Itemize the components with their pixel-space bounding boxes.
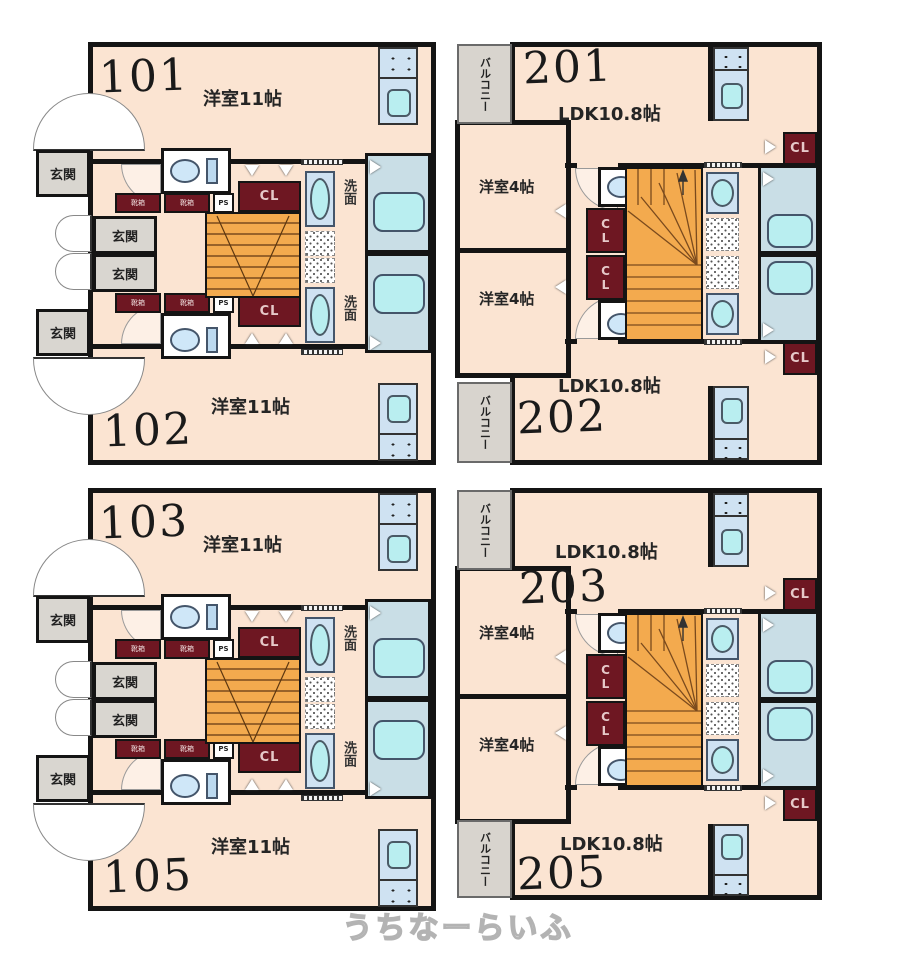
sink-icon bbox=[721, 834, 743, 860]
ldk-label-201: LDK10.8帖 bbox=[558, 100, 661, 126]
door-marker bbox=[555, 650, 566, 664]
plan-block-103-105: 玄関 玄関 103 洋室11帖 靴箱 靴箱 PS 靴箱 靴箱 PS 玄関 玄関 … bbox=[88, 488, 436, 911]
sliding-door bbox=[704, 608, 742, 614]
wall bbox=[565, 339, 577, 344]
stairs bbox=[625, 613, 703, 787]
kitchen-105 bbox=[378, 829, 418, 907]
washer-space-105 bbox=[305, 704, 335, 729]
entrance-label: 玄関 bbox=[50, 610, 76, 629]
door-marker bbox=[763, 172, 774, 186]
bathroom-101 bbox=[365, 153, 431, 253]
stairs bbox=[205, 658, 301, 744]
washer-space-203 bbox=[706, 664, 739, 697]
bathroom-205 bbox=[758, 700, 819, 789]
entry-door-arc bbox=[55, 215, 92, 252]
door-marker bbox=[370, 336, 381, 350]
stairs bbox=[625, 167, 703, 341]
closet-mid-205: CL bbox=[586, 701, 625, 746]
door-marker bbox=[765, 140, 776, 154]
closet-mid-201: CL bbox=[586, 208, 625, 253]
stove-icon bbox=[380, 433, 416, 463]
entrance-hall-105: 玄関 bbox=[93, 700, 157, 738]
door-marker bbox=[765, 350, 776, 364]
entrance-hall-103: 玄関 bbox=[93, 662, 157, 700]
unit-number-105: 105 bbox=[102, 853, 193, 900]
balcony-205: バルコニー bbox=[457, 820, 512, 898]
sliding-door bbox=[301, 349, 343, 355]
bathtub-icon bbox=[767, 707, 813, 741]
sink-icon bbox=[387, 89, 411, 117]
sink-icon bbox=[721, 529, 743, 555]
kitchen-205 bbox=[713, 824, 749, 896]
closet-mid-203: CL bbox=[586, 654, 625, 699]
toilet-room-105 bbox=[161, 759, 231, 805]
washbasin-203 bbox=[706, 618, 739, 660]
entrance-label: 玄関 bbox=[112, 264, 138, 283]
room-label-11jo-105: 洋室11帖 bbox=[211, 833, 290, 859]
shoe-box: 靴箱 bbox=[164, 739, 210, 759]
plan-block-201-202: バルコニー バルコニー 201 LDK10.8帖 CL 洋室4帖 洋室4帖 CL bbox=[455, 42, 825, 465]
closet-202: CL bbox=[783, 342, 817, 375]
door-marker bbox=[763, 618, 774, 632]
room-label-11jo-103: 洋室11帖 bbox=[203, 531, 282, 557]
kitchen-202 bbox=[713, 386, 749, 460]
site-watermark: うちなーらいふ bbox=[343, 903, 574, 947]
door-marker bbox=[555, 204, 566, 218]
stove-icon bbox=[380, 49, 416, 79]
wall bbox=[455, 694, 571, 699]
door-marker bbox=[245, 779, 259, 790]
washer-space-101 bbox=[305, 231, 335, 256]
shoe-box: 靴箱 bbox=[164, 293, 210, 313]
unit-number-201: 201 bbox=[522, 44, 613, 91]
toilet-icon bbox=[170, 159, 200, 183]
washroom-label-101: 洗面 bbox=[339, 179, 358, 205]
kitchen-101 bbox=[378, 47, 418, 125]
toilet-room-101 bbox=[161, 148, 231, 194]
door-marker bbox=[279, 165, 293, 176]
stove-icon bbox=[715, 49, 747, 71]
unit-number-103: 103 bbox=[98, 499, 189, 546]
balcony-201: バルコニー bbox=[457, 44, 512, 124]
door-marker bbox=[765, 796, 776, 810]
room-label-4jo-205: 洋室4帖 bbox=[479, 734, 534, 755]
door-marker bbox=[555, 726, 566, 740]
sink-icon bbox=[721, 83, 743, 109]
shoe-box: 靴箱 bbox=[115, 739, 161, 759]
closet-205: CL bbox=[783, 788, 817, 821]
stove-icon bbox=[380, 495, 416, 525]
door-marker bbox=[763, 769, 774, 783]
wall bbox=[565, 785, 577, 790]
bathroom-102 bbox=[365, 253, 431, 353]
washer-space-103 bbox=[305, 677, 335, 702]
plan-block-203-205: バルコニー バルコニー LDK10.8帖 203 CL 洋室4帖 洋室4帖 CL bbox=[455, 488, 825, 911]
sliding-door bbox=[301, 605, 343, 611]
kitchen-102 bbox=[378, 383, 418, 461]
closet-203: CL bbox=[783, 578, 817, 611]
door-marker bbox=[370, 782, 381, 796]
bathtub-icon bbox=[767, 261, 813, 295]
balcony-label: バルコニー bbox=[477, 57, 493, 112]
toilet-icon bbox=[170, 328, 200, 352]
toilet-icon bbox=[170, 774, 200, 798]
unit-number-205: 205 bbox=[516, 850, 607, 897]
balcony-label: バルコニー bbox=[477, 503, 493, 558]
sink-icon bbox=[721, 398, 743, 424]
door-marker bbox=[763, 323, 774, 337]
room-label-4jo-201: 洋室4帖 bbox=[479, 176, 534, 197]
closet-201: CL bbox=[783, 132, 817, 165]
entrance-hall-101: 玄関 bbox=[93, 216, 157, 254]
door-marker bbox=[370, 160, 381, 174]
toilet-room-102 bbox=[161, 313, 231, 359]
pipe-space: PS bbox=[213, 639, 234, 659]
shoe-box: 靴箱 bbox=[115, 193, 161, 213]
shoe-box: 靴箱 bbox=[115, 639, 161, 659]
toilet-tank-icon bbox=[206, 773, 218, 799]
washbasin-103 bbox=[305, 617, 335, 673]
entry-door-arc bbox=[55, 661, 92, 698]
shoe-box: 靴箱 bbox=[115, 293, 161, 313]
balcony-label: バルコニー bbox=[477, 395, 493, 450]
washer-space-102 bbox=[305, 258, 335, 283]
washbasin-202 bbox=[706, 293, 739, 335]
door-marker bbox=[245, 611, 259, 622]
toilet-icon bbox=[170, 605, 200, 629]
balcony-203: バルコニー bbox=[457, 490, 512, 570]
unit-number-101: 101 bbox=[98, 53, 189, 100]
washroom-label-105: 洗面 bbox=[339, 741, 358, 767]
entrance-102: 玄関 bbox=[36, 309, 90, 356]
sliding-door bbox=[301, 159, 343, 165]
sink-icon bbox=[387, 535, 411, 563]
entrance-103: 玄関 bbox=[36, 596, 90, 643]
door-marker bbox=[279, 333, 293, 344]
entrance-label: 玄関 bbox=[50, 164, 76, 183]
toilet-tank-icon bbox=[206, 158, 218, 184]
washbasin-101 bbox=[305, 171, 335, 227]
room-label-11jo-101: 洋室11帖 bbox=[203, 85, 282, 111]
entrance-label: 玄関 bbox=[112, 672, 138, 691]
washbasin-205 bbox=[706, 739, 739, 781]
door-marker bbox=[370, 606, 381, 620]
wall bbox=[455, 248, 571, 253]
stove-icon bbox=[715, 438, 747, 460]
sliding-door bbox=[704, 162, 742, 168]
door-marker bbox=[765, 586, 776, 600]
unit-number-202: 202 bbox=[516, 394, 607, 441]
entrance-105: 玄関 bbox=[36, 755, 90, 802]
bathroom-103 bbox=[365, 599, 431, 699]
room-label-4jo-202: 洋室4帖 bbox=[479, 288, 534, 309]
door-marker bbox=[279, 779, 293, 790]
floor-plan-sheet: 玄関 玄関 101 洋室11帖 靴箱 靴箱 PS 靴箱 靴箱 PS 玄関 玄関 … bbox=[0, 0, 898, 960]
stove-icon bbox=[715, 495, 747, 517]
bathroom-202 bbox=[758, 254, 819, 343]
pipe-space: PS bbox=[213, 193, 234, 213]
stairs bbox=[205, 212, 301, 298]
room-label-4jo-203: 洋室4帖 bbox=[479, 622, 534, 643]
shoe-box: 靴箱 bbox=[164, 193, 210, 213]
entrance-label: 玄関 bbox=[112, 226, 138, 245]
closet-101: CL bbox=[238, 181, 301, 212]
entrance-101: 玄関 bbox=[36, 150, 90, 197]
sink-icon bbox=[387, 841, 411, 869]
bathtub-icon bbox=[373, 192, 425, 232]
toilet-room-103 bbox=[161, 594, 231, 640]
bathtub-icon bbox=[373, 638, 425, 678]
unit-number-203: 203 bbox=[518, 564, 609, 611]
washroom-label-103: 洗面 bbox=[339, 625, 358, 651]
sliding-door bbox=[704, 785, 742, 791]
bathtub-icon bbox=[767, 214, 813, 248]
entry-door-arc bbox=[55, 253, 92, 290]
closet-103: CL bbox=[238, 627, 301, 658]
toilet-tank-icon bbox=[206, 604, 218, 630]
kitchen-203 bbox=[713, 493, 749, 567]
washbasin-201 bbox=[706, 172, 739, 214]
entrance-hall-102: 玄関 bbox=[93, 254, 157, 292]
closet-mid-202: CL bbox=[586, 255, 625, 300]
closet-105: CL bbox=[238, 742, 301, 773]
bathroom-105 bbox=[365, 699, 431, 799]
kitchen-103 bbox=[378, 493, 418, 571]
washroom-label-102: 洗面 bbox=[339, 295, 358, 321]
door-marker bbox=[555, 280, 566, 294]
washbasin-105 bbox=[305, 733, 335, 789]
unit-number-102: 102 bbox=[102, 407, 193, 454]
door-marker bbox=[245, 165, 259, 176]
washer-space-202 bbox=[706, 256, 739, 289]
stove-icon bbox=[715, 874, 747, 896]
washer-space-205 bbox=[706, 702, 739, 735]
bathtub-icon bbox=[373, 274, 425, 314]
bathroom-201 bbox=[758, 165, 819, 254]
entry-door-arc bbox=[55, 699, 92, 736]
balcony-202: バルコニー bbox=[457, 382, 512, 463]
entrance-label: 玄関 bbox=[50, 769, 76, 788]
closet-102: CL bbox=[238, 296, 301, 327]
room-label-11jo-102: 洋室11帖 bbox=[211, 393, 290, 419]
toilet-tank-icon bbox=[206, 327, 218, 353]
bathtub-icon bbox=[767, 660, 813, 694]
plan-block-101-102: 玄関 玄関 101 洋室11帖 靴箱 靴箱 PS 靴箱 靴箱 PS 玄関 玄関 … bbox=[88, 42, 436, 465]
entrance-label: 玄関 bbox=[50, 323, 76, 342]
shoe-box: 靴箱 bbox=[164, 639, 210, 659]
entrance-label: 玄関 bbox=[112, 710, 138, 729]
kitchen-201 bbox=[713, 47, 749, 121]
balcony-label: バルコニー bbox=[477, 832, 493, 887]
bathtub-icon bbox=[373, 720, 425, 760]
bathroom-203 bbox=[758, 611, 819, 700]
washer-space-201 bbox=[706, 218, 739, 251]
sliding-door bbox=[704, 339, 742, 345]
sliding-door bbox=[301, 795, 343, 801]
door-marker bbox=[279, 611, 293, 622]
sink-icon bbox=[387, 395, 411, 423]
door-marker bbox=[245, 333, 259, 344]
washbasin-102 bbox=[305, 287, 335, 343]
